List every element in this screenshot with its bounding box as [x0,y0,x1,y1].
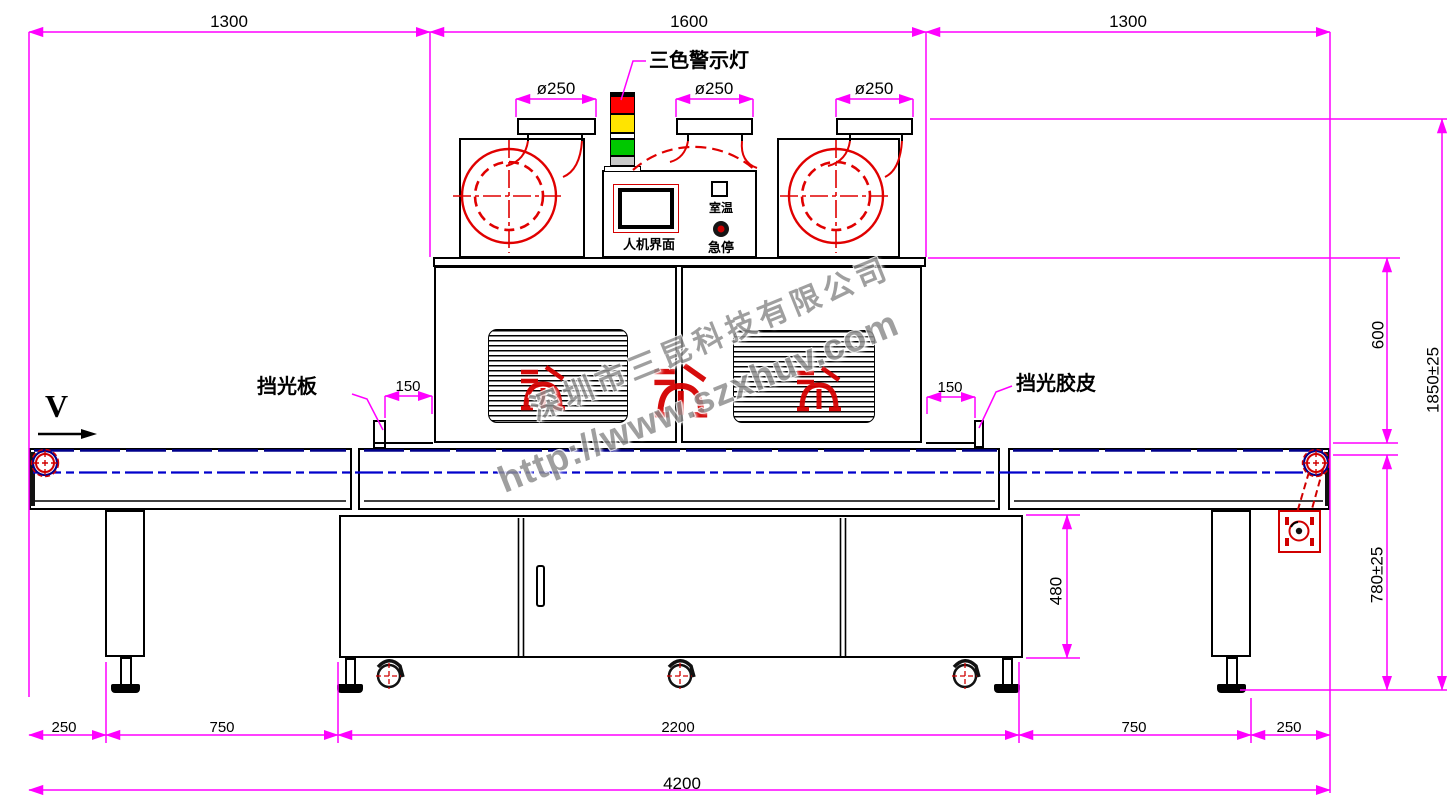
casters [376,661,979,689]
blower-scroll-left [453,140,582,253]
drive-motor [1279,469,1323,552]
dim-top-center: 1600 [670,13,708,30]
caster-wheel [952,661,979,689]
dim-bottom-0: 250 [51,720,76,735]
dim-duct-right: ø250 [855,80,894,97]
dim-oven-height: 600 [1370,321,1387,349]
label-light-shield-plate: 挡光板 [257,377,317,397]
dim-duct-middle: ø250 [695,80,734,97]
engineering-drawing-uv-curing-machine: 深圳市三昆科技有限公司 http://www.szxhuv.com 1300 1… [0,0,1453,811]
belt-direction-arrow [38,429,97,439]
dim-total-width: 4200 [663,775,701,792]
dim-offset-left: 150 [395,379,420,394]
label-emergency-stop: 急停 [708,241,734,254]
dim-top-right: 1300 [1109,13,1147,30]
blower-scroll-right [780,140,902,253]
drawing-overlay [0,0,1453,811]
roller-sprocket-right [1303,450,1330,477]
dim-bottom-4: 250 [1276,720,1301,735]
label-warning-light: 三色警示灯 [649,51,749,71]
dim-bottom-2: 2200 [661,720,694,735]
caster-wheel [376,661,403,689]
leader-warning-light [621,61,646,100]
label-belt-direction: V [45,390,68,422]
caster-wheel [667,661,694,689]
dim-top-left: 1300 [210,13,248,30]
dim-total-height: 1850±25 [1425,347,1442,413]
dim-bottom-3: 750 [1121,720,1146,735]
dim-cabinet-height: 480 [1048,577,1065,605]
leader-light-shield-plate [352,394,383,430]
dim-duct-left: ø250 [537,80,576,97]
dim-bottom-1: 750 [209,720,234,735]
dimension-lines [29,32,1447,793]
label-hmi: 人机界面 [623,238,675,251]
conveyor-belt-lines [33,451,1325,473]
label-room-temp: 室温 [709,202,733,214]
brand-logo-marks [521,366,841,415]
dim-table-height: 780±25 [1369,547,1386,604]
dim-offset-right: 150 [937,380,962,395]
leader-light-shield-rubber [979,386,1012,428]
emergency-stop-button [713,221,729,237]
blower-scroll-middle [633,141,757,170]
label-light-shield-rubber: 挡光胶皮 [1016,374,1096,394]
